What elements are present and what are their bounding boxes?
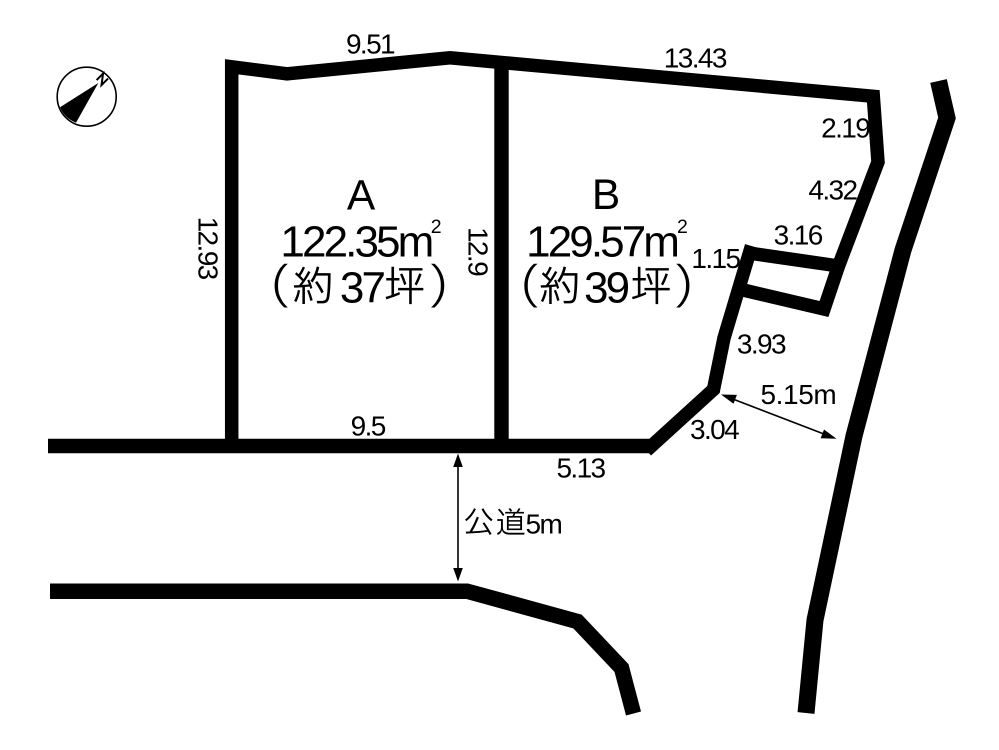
svg-text:122.35m: 122.35m (280, 218, 431, 267)
svg-text:2: 2 (431, 216, 442, 238)
svg-text:1.15: 1.15 (691, 243, 740, 274)
svg-text:4.32: 4.32 (808, 174, 857, 205)
svg-text:13.43: 13.43 (664, 43, 727, 74)
svg-text:12.9: 12.9 (463, 227, 494, 276)
svg-text:5.13: 5.13 (556, 453, 605, 484)
svg-text:39: 39 (584, 264, 629, 313)
svg-text:9.5: 9.5 (351, 411, 386, 442)
svg-text:5m: 5m (526, 509, 562, 540)
svg-text:12.93: 12.93 (193, 217, 224, 280)
svg-text:37: 37 (340, 264, 385, 313)
svg-text:A: A (347, 173, 376, 220)
svg-text:3.93: 3.93 (737, 328, 786, 359)
svg-text:9.51: 9.51 (346, 29, 395, 60)
svg-text:2.19: 2.19 (821, 112, 870, 143)
svg-text:B: B (592, 172, 620, 219)
svg-text:2: 2 (677, 216, 688, 238)
svg-text:3.16: 3.16 (774, 220, 823, 251)
svg-text:3.04: 3.04 (690, 414, 739, 445)
svg-text:5.15m: 5.15m (760, 379, 836, 410)
svg-text:129.57m: 129.57m (526, 218, 677, 267)
